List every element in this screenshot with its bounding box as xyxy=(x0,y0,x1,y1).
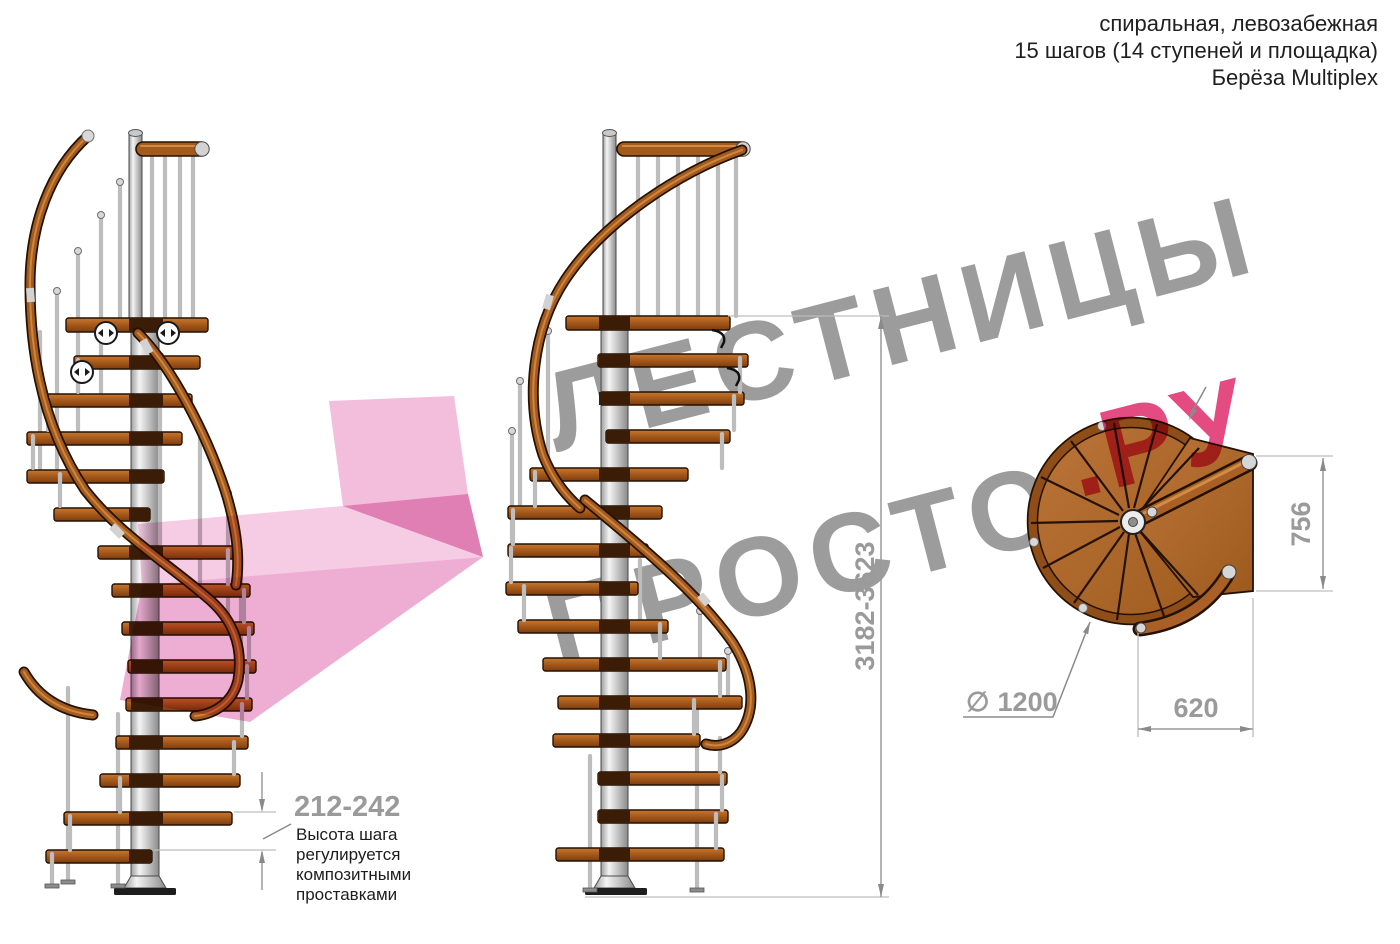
note-line3: композитными xyxy=(296,865,411,884)
drawing-page: ЛЕСТНИЦЫ ПРОСТО xyxy=(0,0,1400,944)
diameter-value: 1200 xyxy=(998,687,1058,717)
title-line-steps: 15 шагов (14 ступеней и площадка) xyxy=(1014,37,1378,64)
note-line4: проставками xyxy=(296,885,397,904)
title-line-material: Берёза Multiplex xyxy=(1014,64,1378,91)
diameter-symbol: ∅ xyxy=(966,687,990,717)
left-pole-cap xyxy=(129,130,143,137)
plan-center-pin xyxy=(1129,518,1138,527)
note-line1: Высота шага xyxy=(296,825,398,844)
center-staircase-view xyxy=(506,130,751,896)
center-pole-base xyxy=(594,876,635,888)
left-pole-top xyxy=(129,133,142,320)
note-line2: регулируется xyxy=(296,845,400,864)
title-line-type: спиральная, левозабежная xyxy=(1014,10,1378,37)
dim-diameter: ∅1200 xyxy=(966,687,1058,717)
drawing-canvas: ЛЕСТНИЦЫ ПРОСТО xyxy=(0,0,1400,944)
title-block: спиральная, левозабежная 15 шагов (14 ст… xyxy=(1014,10,1378,91)
dim-step-height: 212-242 xyxy=(294,791,400,823)
dim-landing-depth: 756 xyxy=(1286,501,1316,546)
dim-total-height: 3182-3623 xyxy=(850,541,880,670)
center-pole-cap xyxy=(603,130,617,137)
left-pole-base xyxy=(124,876,166,888)
left-base-plate xyxy=(114,888,176,895)
left-handrail-cap xyxy=(195,142,209,156)
dim-landing-width: 620 xyxy=(1173,693,1218,723)
left-staircase-view xyxy=(24,130,256,896)
